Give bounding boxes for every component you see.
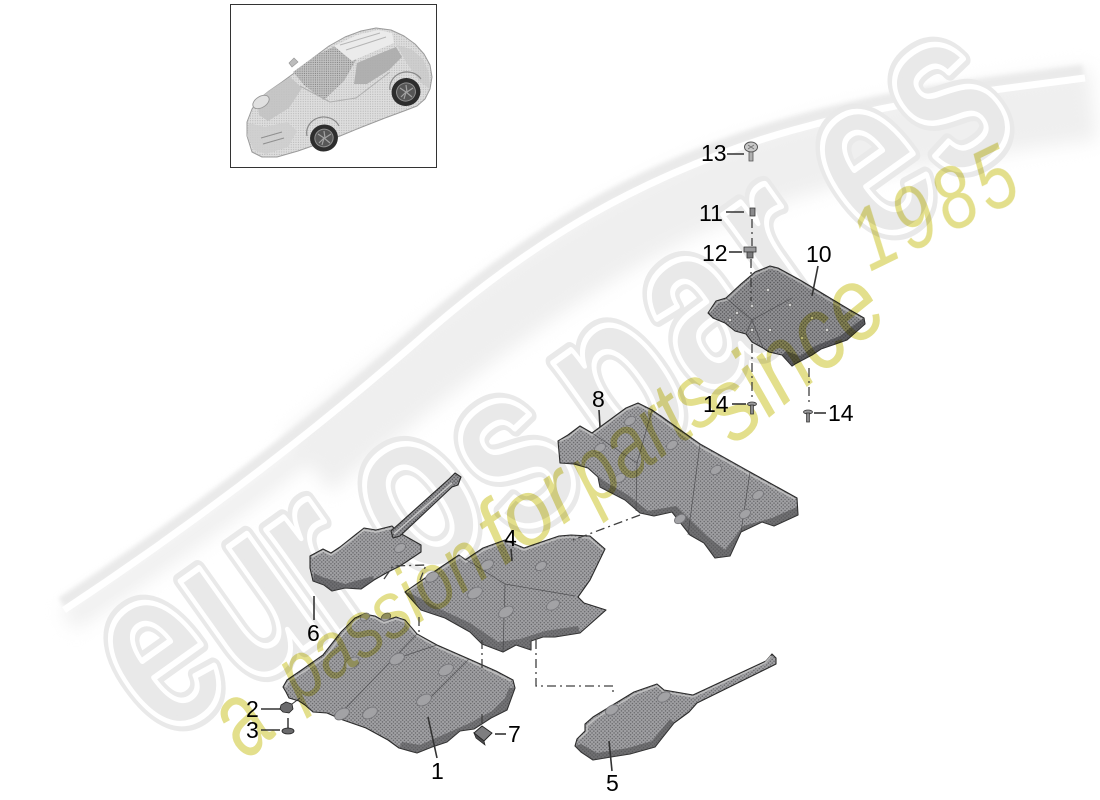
svg-text:13: 13 (701, 140, 727, 166)
svg-text:7: 7 (508, 721, 521, 747)
svg-text:5: 5 (606, 770, 619, 796)
svg-text:14: 14 (828, 400, 854, 426)
svg-text:10: 10 (806, 241, 832, 267)
svg-text:3: 3 (246, 717, 259, 743)
svg-text:12: 12 (702, 240, 728, 266)
svg-text:1: 1 (431, 758, 444, 784)
svg-text:14: 14 (703, 391, 729, 417)
svg-text:11: 11 (699, 200, 723, 226)
svg-text:4: 4 (504, 525, 517, 551)
svg-text:6: 6 (307, 620, 320, 646)
svg-text:8: 8 (592, 386, 605, 412)
